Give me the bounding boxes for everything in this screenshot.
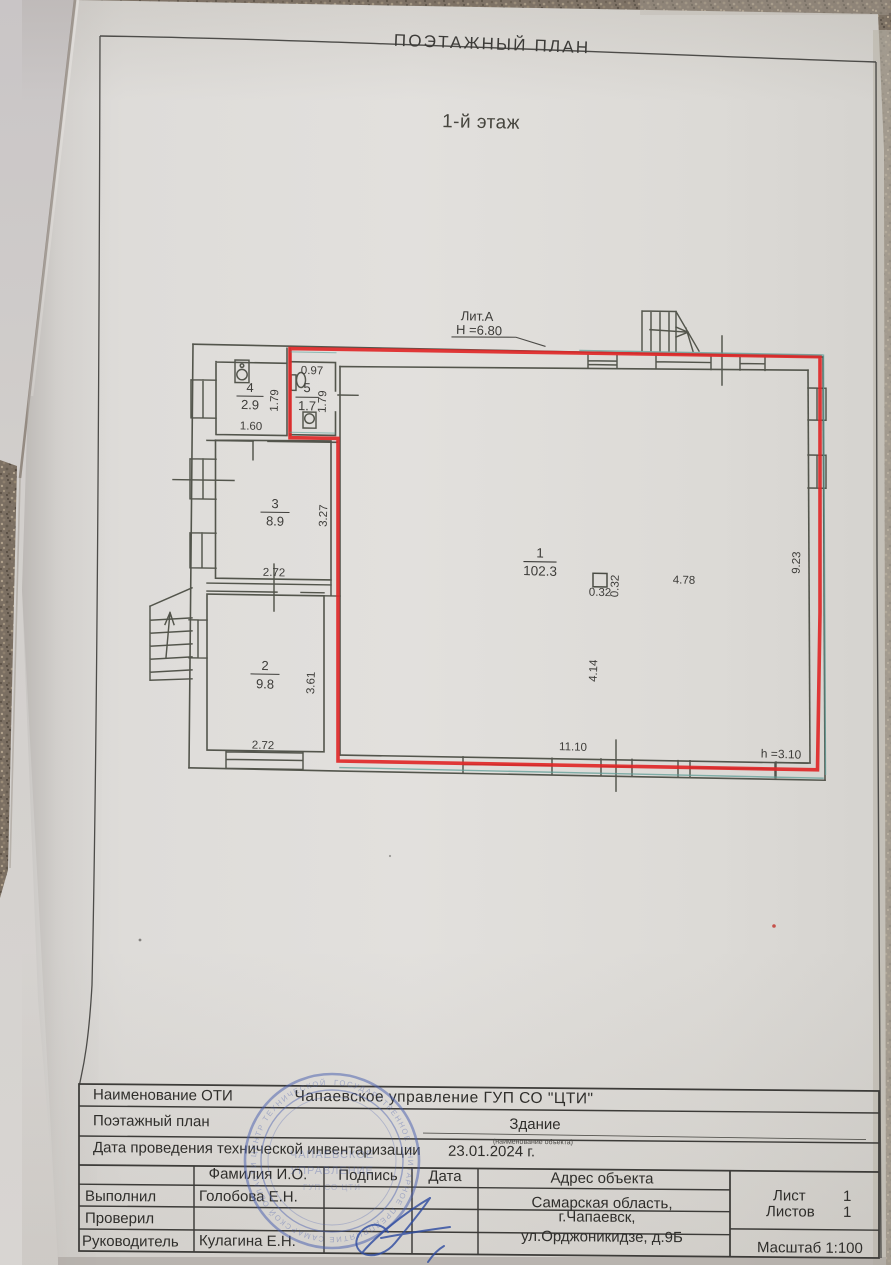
svg-text:1: 1	[843, 1188, 851, 1205]
svg-text:8.9: 8.9	[266, 513, 284, 529]
svg-text:9.8: 9.8	[256, 676, 274, 692]
svg-text:4.78: 4.78	[673, 574, 696, 587]
svg-text:Проверил: Проверил	[85, 1210, 154, 1228]
svg-text:Кулагина Е.Н.: Кулагина Е.Н.	[199, 1232, 296, 1250]
svg-text:3.61: 3.61	[305, 671, 318, 694]
svg-text:3: 3	[271, 496, 278, 511]
svg-text:h =3.10: h =3.10	[761, 746, 802, 761]
svg-text:9.23: 9.23	[791, 551, 804, 574]
svg-text:Здание: Здание	[509, 1116, 560, 1133]
svg-text:102.3: 102.3	[523, 563, 557, 579]
svg-text:23.01.2024 г.: 23.01.2024 г.	[448, 1143, 535, 1161]
svg-text:4.14: 4.14	[588, 659, 601, 683]
svg-text:Масштаб 1:100: Масштаб 1:100	[757, 1239, 863, 1257]
svg-text:Дата: Дата	[428, 1168, 462, 1185]
svg-text:1-й этаж: 1-й этаж	[442, 111, 520, 134]
svg-text:2.9: 2.9	[241, 397, 259, 413]
svg-text:Листов: Листов	[766, 1203, 815, 1220]
svg-text:Лист: Лист	[773, 1187, 806, 1204]
svg-text:г.Чапаевск,: г.Чапаевск,	[559, 1208, 636, 1226]
svg-text:0.97: 0.97	[301, 365, 324, 378]
svg-text:Выполнил: Выполнил	[85, 1188, 156, 1206]
svg-text:3.27: 3.27	[318, 504, 331, 527]
svg-text:Н =6.80: Н =6.80	[456, 322, 502, 338]
svg-text:2.72: 2.72	[252, 740, 275, 753]
svg-text:0.32: 0.32	[609, 575, 622, 598]
svg-text:Голобова Е.Н.: Голобова Е.Н.	[199, 1188, 298, 1206]
svg-text:0.32: 0.32	[589, 587, 612, 600]
svg-text:Руководитель: Руководитель	[82, 1233, 179, 1251]
svg-text:Поэтажный план: Поэтажный план	[93, 1112, 210, 1130]
svg-text:1: 1	[843, 1204, 851, 1221]
svg-text:Адрес объекта: Адрес объекта	[550, 1170, 654, 1188]
svg-text:1: 1	[536, 545, 544, 560]
svg-text:ул.Орджоникидзе, д.9Б: ул.Орджоникидзе, д.9Б	[521, 1228, 683, 1246]
svg-text:УПРАВЛЕНИЕ: УПРАВЛЕНИЕ	[290, 1165, 374, 1177]
svg-text:2: 2	[261, 658, 268, 673]
svg-text:1.79: 1.79	[317, 390, 330, 413]
svg-text:ГУП СО ЦТИ: ГУП СО ЦТИ	[303, 1183, 361, 1192]
svg-text:4: 4	[246, 380, 253, 395]
svg-text:Наименование ОТИ: Наименование ОТИ	[93, 1086, 233, 1104]
svg-text:1.79: 1.79	[269, 389, 282, 412]
svg-text:ЧАПАЕВСКОЕ: ЧАПАЕВСКОЕ	[290, 1149, 374, 1161]
svg-text:1.7: 1.7	[298, 398, 316, 414]
svg-text:1.60: 1.60	[240, 420, 263, 433]
svg-text:2.72: 2.72	[263, 567, 286, 580]
svg-text:5: 5	[303, 380, 310, 395]
svg-text:11.10: 11.10	[559, 741, 587, 754]
